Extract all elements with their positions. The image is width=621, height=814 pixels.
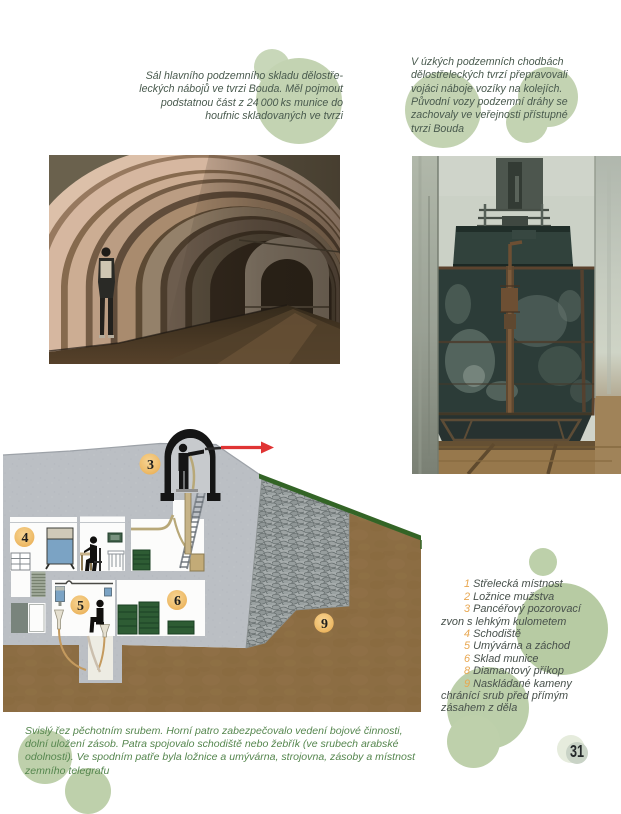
svg-text:5: 5	[77, 599, 84, 614]
svg-text:6: 6	[174, 594, 181, 609]
svg-text:9: 9	[321, 617, 328, 632]
svg-text:3: 3	[147, 458, 154, 473]
svg-text:4: 4	[22, 531, 29, 546]
